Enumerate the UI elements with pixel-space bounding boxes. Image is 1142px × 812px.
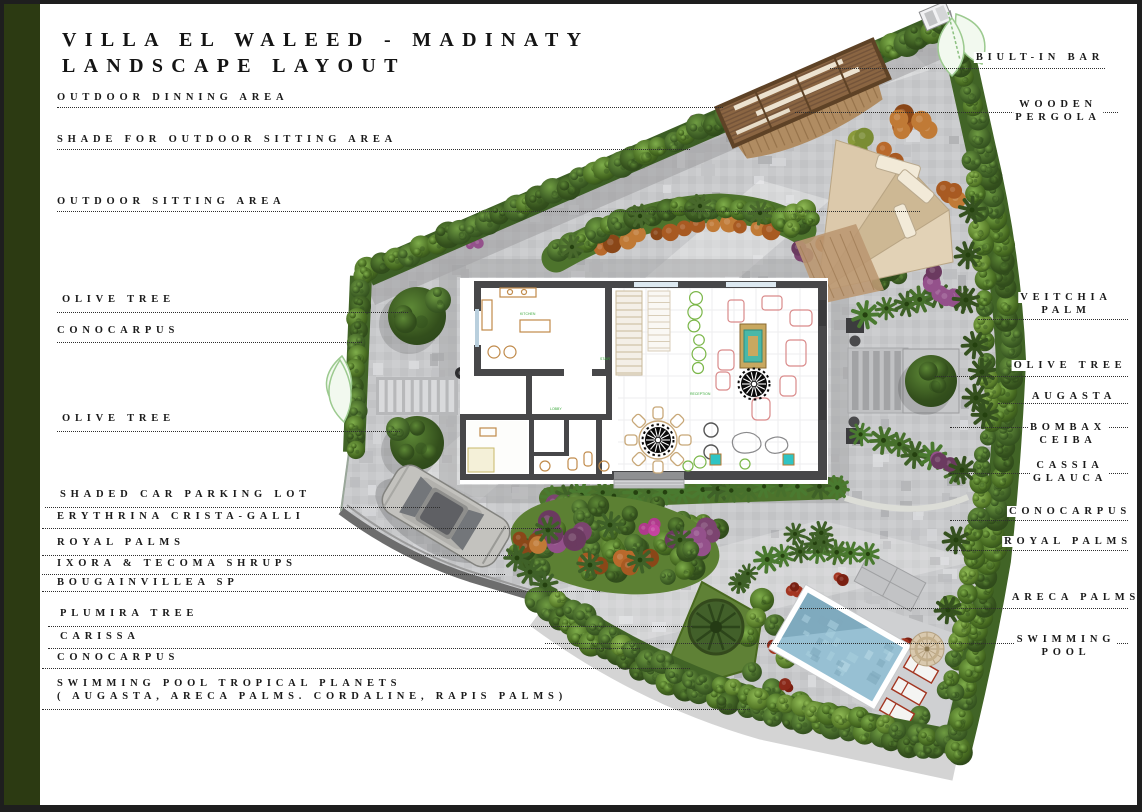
- svg-text:LOBBY: LOBBY: [550, 407, 562, 411]
- svg-text:STAIR: STAIR: [600, 357, 611, 361]
- svg-text:RECEPTION: RECEPTION: [690, 392, 711, 396]
- svg-text:KITCHEN: KITCHEN: [520, 312, 536, 316]
